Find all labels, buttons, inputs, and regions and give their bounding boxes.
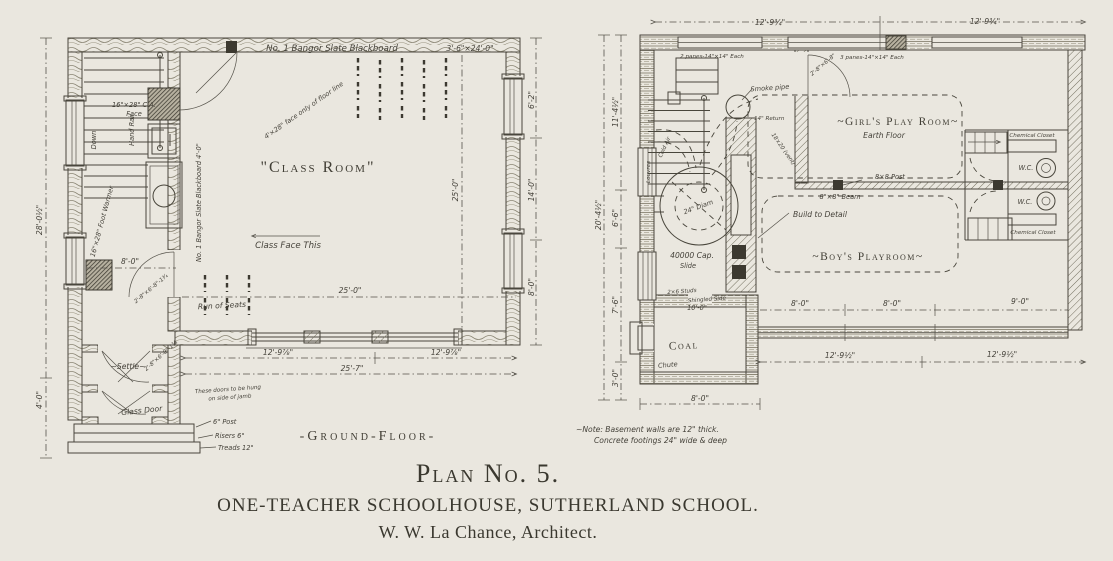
west-window <box>64 96 86 170</box>
ground-floor-plan: No. 1 Bangor Slate Blackboard 3'-6"×24'-… <box>35 38 542 458</box>
label-face-note: 4'×28" face only of floor line <box>263 80 345 141</box>
scanned-plan-page: No. 1 Bangor Slate Blackboard 3'-6"×24'-… <box>0 0 1113 561</box>
label-slide: Slide <box>680 262 696 270</box>
label-panes-3: 3 panes-14"×14" Each <box>840 55 904 61</box>
label-chemical-closet-1: Chemical Closet <box>1009 133 1055 139</box>
dim-bay-left: 12'-9⅞" <box>263 348 293 357</box>
settle-wall <box>82 345 98 352</box>
label-note-1: ~Note: Basement walls are 12" thick. <box>576 425 719 434</box>
dim-int-2: 8'-0" <box>883 299 901 308</box>
dim-room-depth: 25'-0" <box>451 179 460 202</box>
blackboard-ticks <box>358 58 446 120</box>
basement-chimney <box>726 118 756 292</box>
label-furnace-diam: 24" Diam <box>682 198 714 216</box>
hall-wall-lower <box>168 297 180 331</box>
label-coal: Coal <box>668 339 699 353</box>
post <box>993 180 1003 190</box>
dim-hall-width: 8'-0" <box>121 257 139 266</box>
label-down: Down <box>90 131 98 150</box>
entry-east-wall <box>168 345 180 424</box>
coal-chute <box>630 322 654 354</box>
vestibule-wall <box>152 385 168 392</box>
dim-coal-width: 8'-0" <box>691 394 709 403</box>
label-furnace-cap: 40000 Cap. <box>670 251 714 260</box>
vestibule-wall <box>82 385 98 392</box>
label-panes-2: 2 panes-14"×14" Each <box>680 54 744 60</box>
dim-bot-left: 12'-9½" <box>825 351 855 360</box>
label-risers: Risers 6" <box>215 432 244 440</box>
basement-plan: ~Girl's Play Room~ Earth Floor ~Boy's Pl… <box>576 16 1085 445</box>
dim-int-3: 9'-0" <box>1011 297 1029 306</box>
foot-warmer-register <box>86 260 112 290</box>
dim-east-1: 6'-2" <box>527 91 536 109</box>
label-blackboard-side: No. 1 Bangor Slate Blackboard 4'-0" <box>195 143 203 262</box>
east-window <box>502 74 524 139</box>
north-windows <box>678 36 1022 49</box>
post <box>833 180 843 190</box>
dim-side-total: 28'-0½" <box>35 205 44 235</box>
label-settle: ~Settle~ <box>111 362 146 371</box>
label-studs-height: 10'-0" <box>687 304 707 312</box>
caption: Plan No. 5. ONE-TEACHER SCHOOLHOUSE, SUT… <box>0 461 976 541</box>
south-window-band <box>246 329 462 348</box>
plan-title-ground-floor: -Ground-Floor- <box>300 429 437 444</box>
label-vent: 18×20 (vent) <box>770 132 796 166</box>
dim-west-2: 6'-6" <box>611 209 620 227</box>
label-post: 6" Post <box>213 418 237 426</box>
label-wc-2: W.C. <box>1018 198 1033 206</box>
architect-credit: W. W. La Chance, Architect. <box>0 523 976 541</box>
dim-east-3: 8'-0" <box>527 278 536 296</box>
dim-top-left: 12'-9¾" <box>755 18 785 27</box>
door-jamb-block <box>226 41 237 53</box>
dim-west-3: 7'-6" <box>611 296 620 314</box>
entry-door-swings <box>98 344 152 414</box>
plan-number: Plan No. 5. <box>0 461 976 487</box>
label-door-size: 2'-8"×6'-8" <box>809 53 837 78</box>
label-hand-rail: Hand Rail <box>128 114 136 146</box>
label-ca-face: 16"×28" C.A. <box>112 101 156 109</box>
west-window <box>64 233 86 289</box>
label-treads: Treads 12" <box>218 444 253 452</box>
label-wc-1: W.C. <box>1019 164 1034 172</box>
porch-steps <box>68 424 200 453</box>
dim-east-2: 14'-0" <box>527 179 536 202</box>
label-note-2: Concrete footings 24" wide & deep <box>594 436 727 445</box>
south-window-band <box>758 324 1068 341</box>
label-door-size: 2'-8"×6'-8"-1¾ <box>133 273 170 305</box>
dim-top-right: 12'-9¾" <box>970 17 1000 26</box>
page-title: ONE-TEACHER SCHOOLHOUSE, SUTHERLAND SCHO… <box>0 496 976 515</box>
basement-stairs <box>648 58 718 193</box>
coal-south-wall <box>640 372 758 384</box>
label-chute: Chute <box>658 360 678 370</box>
label-return: 14" Return <box>754 116 785 122</box>
label-run-of-seats: Run of Seats <box>198 300 247 312</box>
label-chemical-closet-2: Chemical Closet <box>1010 230 1056 236</box>
dim-bay-right: 12'-9⅞" <box>431 348 461 357</box>
chemical-closet-shelf <box>1008 140 1056 152</box>
girls-play-area <box>748 95 962 178</box>
label-glass-door: Glass Door <box>121 404 164 417</box>
label-class-face: Class Face This <box>255 241 321 251</box>
south-wall-right <box>458 331 506 345</box>
chemical-closet-shelf <box>1008 214 1056 225</box>
east-wall <box>1068 50 1082 330</box>
label-smoke-pipe: Smoke pipe <box>750 83 789 94</box>
label-louvres: Louvres <box>646 161 652 183</box>
label-beam: 8"×8" Beam <box>819 193 860 201</box>
label-post: 8×8 Post <box>875 173 905 181</box>
label-build-to-detail: Build to Detail <box>793 210 848 219</box>
label-earth-floor: Earth Floor <box>863 131 906 140</box>
dim-west-4: 3'-0" <box>611 369 620 387</box>
label-girls-play-room: ~Girl's Play Room~ <box>837 116 958 128</box>
stairs <box>84 53 164 199</box>
label-blackboard-size: 3'-6"×24'-0" <box>446 44 493 53</box>
porch-wall <box>152 417 168 424</box>
label-class-room: "Class Room" <box>261 159 376 176</box>
dim-room-width: 25'-0" <box>339 286 362 295</box>
label-blackboard: No. 1 Bangor Slate Blackboard <box>266 44 398 54</box>
east-window <box>502 229 524 293</box>
label-foot-warmer: 16"×28" Foot Warmer <box>89 184 116 258</box>
wc-fixture <box>1037 159 1056 178</box>
dim-west-total: 20'-4½" <box>594 200 603 230</box>
wc-fixture <box>1037 192 1055 210</box>
dim-west-1: 11'-4½" <box>611 97 620 127</box>
dim-overall-width: 25'-7" <box>341 364 364 373</box>
label-cold-air: Cold Air <box>658 136 673 159</box>
dim-bot-right: 12'-9½" <box>987 350 1017 359</box>
label-doors-note: These doors to be hung <box>195 385 262 396</box>
dim-porch-depth: 4'-0" <box>35 391 44 409</box>
south-wall-left <box>175 331 252 345</box>
label-boys-playroom: ~Boy's Playroom~ <box>812 251 923 263</box>
porch-wall <box>82 417 98 424</box>
label-doors-note-2: on side of jamb <box>208 393 252 402</box>
dim-int-1: 8'-0" <box>791 299 809 308</box>
coal-east-wall <box>746 295 758 384</box>
